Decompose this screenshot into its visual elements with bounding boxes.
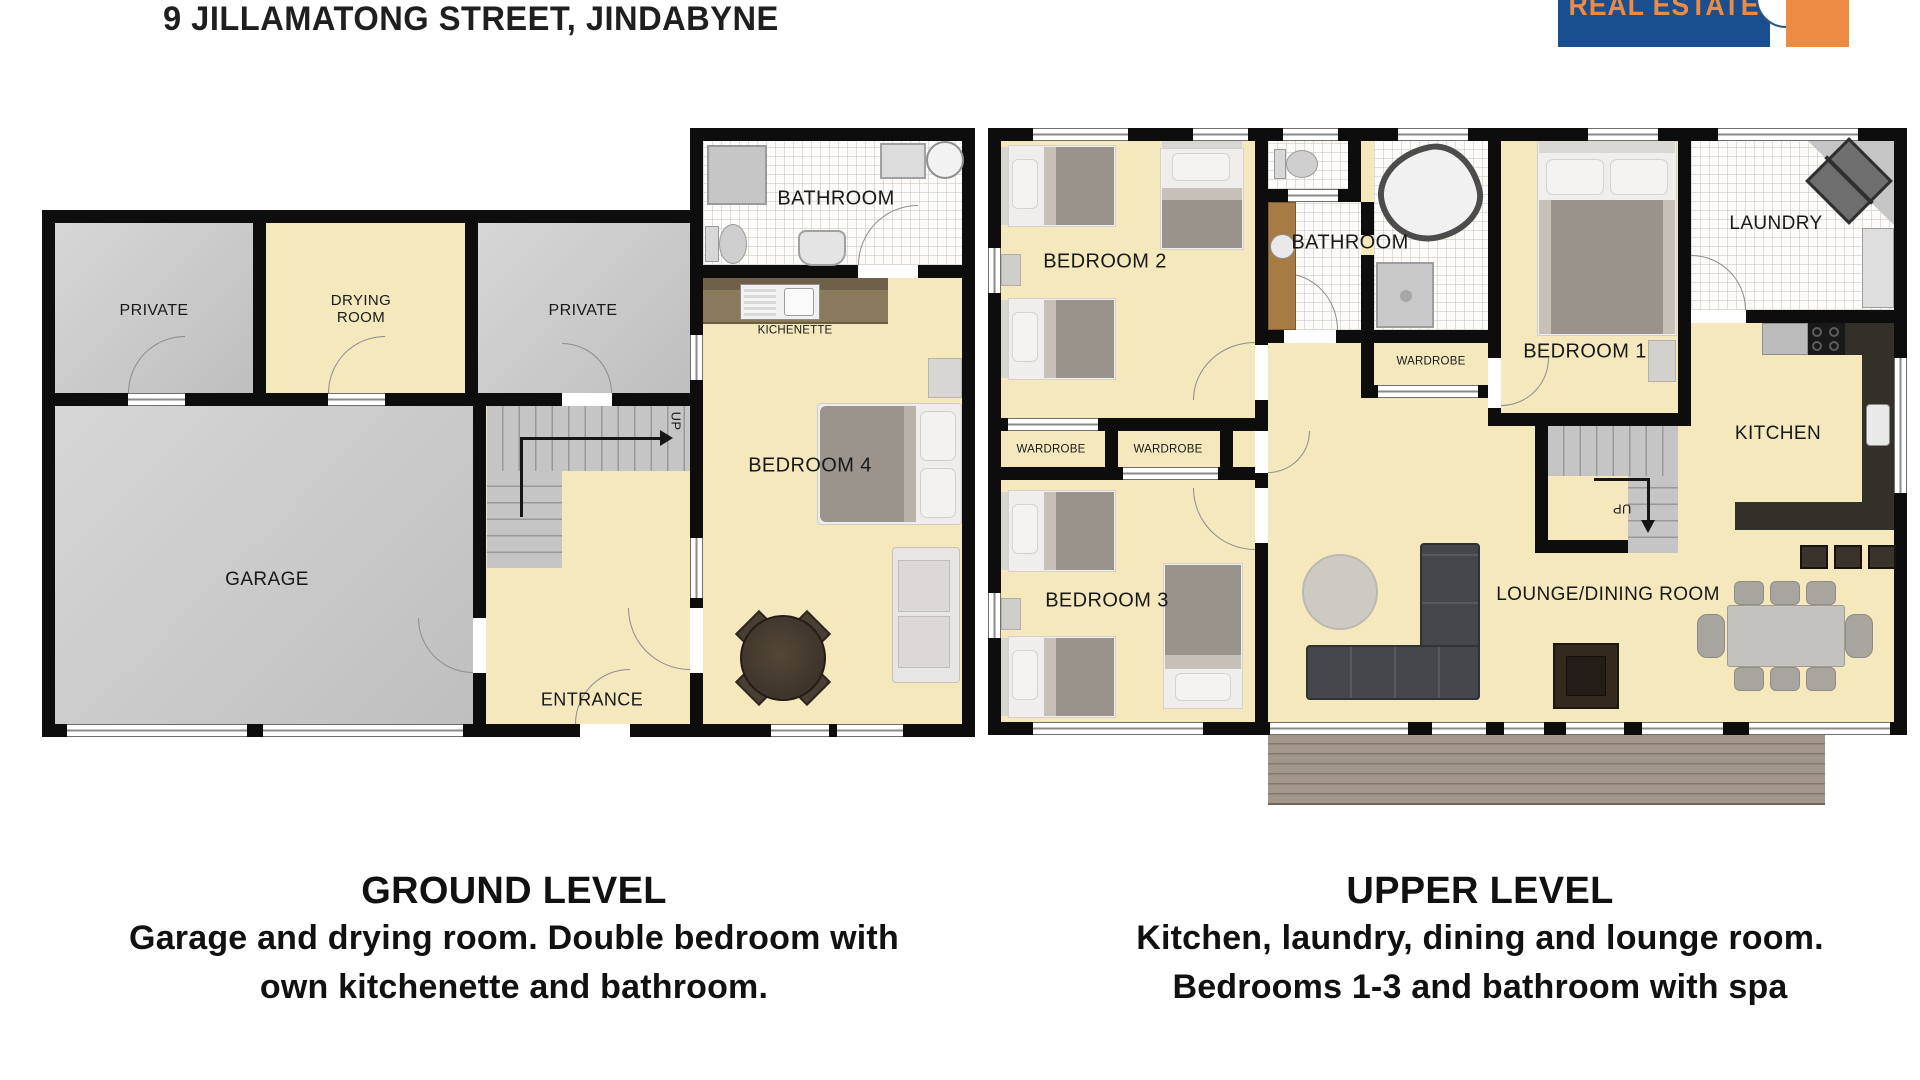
stairs-arrow-line	[1594, 478, 1650, 481]
dining-chair	[1770, 581, 1800, 605]
deck	[1268, 723, 1825, 805]
stairs-arrow-head	[1641, 520, 1655, 533]
wall	[473, 673, 486, 724]
window	[988, 593, 1001, 638]
window	[1718, 128, 1858, 141]
bed-pillow	[1610, 159, 1668, 195]
wall	[42, 210, 703, 223]
window	[1270, 722, 1890, 735]
window	[1033, 128, 1128, 141]
room-label-bedroom4: BEDROOM 4	[748, 455, 872, 478]
bed-pillow	[1012, 650, 1038, 700]
logo-orange-panel	[1786, 0, 1849, 47]
window	[1033, 722, 1203, 735]
bed-pillow	[920, 468, 956, 518]
bed-sheet-fold	[1165, 655, 1241, 669]
bed-sheet-fold	[1044, 147, 1056, 225]
logo-blue-panel: REAL ESTATE	[1558, 0, 1770, 47]
bed-pillow	[1546, 159, 1604, 195]
garage-door	[263, 724, 463, 737]
bed-pillow	[1012, 159, 1038, 209]
round-basin	[926, 141, 964, 179]
dining-chair	[1697, 614, 1725, 658]
room-label-private1: PRIVATE	[120, 302, 189, 320]
stairs-up-label: UP	[1613, 501, 1632, 516]
toilet	[1274, 149, 1286, 179]
bedside-shelf	[928, 358, 962, 398]
wall	[1535, 540, 1628, 553]
burner	[1829, 341, 1839, 351]
room-label-garage: GARAGE	[225, 569, 309, 591]
wall	[253, 210, 266, 406]
dining-chair	[1734, 581, 1764, 605]
room-label-kichenette: KICHENETTE	[758, 324, 833, 337]
kitchen-counter-dark	[1845, 323, 1894, 355]
window	[1193, 128, 1248, 141]
bar-stool	[1868, 545, 1896, 569]
door-opening	[1284, 330, 1336, 343]
wall	[1488, 141, 1501, 358]
wall	[1488, 413, 1678, 426]
bed-headboard	[1001, 147, 1008, 225]
wall	[1361, 202, 1374, 235]
wall	[465, 210, 478, 406]
bar-stool	[1834, 545, 1862, 569]
upper-caption-line1: Kitchen, laundry, dining and lounge room…	[1080, 914, 1880, 963]
room-label-private2: PRIVATE	[549, 302, 618, 320]
room-label-bedroom1: BEDROOM 1	[1523, 341, 1647, 364]
window	[1894, 358, 1907, 493]
wall	[690, 128, 975, 141]
upper-caption-line2: Bedrooms 1-3 and bathroom with spa	[1080, 963, 1880, 1012]
dining-chair	[1734, 667, 1764, 691]
bed-pillow	[1172, 153, 1230, 181]
bed-headboard	[1001, 300, 1008, 378]
wall	[1361, 255, 1374, 330]
bedside-table	[1001, 254, 1021, 286]
door-opening	[473, 618, 486, 673]
logo-real-estate-text: REAL ESTATE	[1566, 0, 1761, 23]
toilet	[705, 226, 719, 262]
bed-blanket	[1539, 200, 1675, 334]
room-label-drying: DRYING ROOM	[331, 292, 391, 327]
wall	[1535, 426, 1548, 553]
wall	[1544, 722, 1566, 735]
wall	[1255, 128, 1268, 345]
stairs-arrow-line2	[1647, 478, 1650, 520]
wall	[1255, 543, 1268, 722]
garage-floor	[55, 406, 473, 724]
wall	[918, 265, 962, 278]
sofa-sectional-horizontal	[1306, 645, 1480, 700]
door-opening	[1255, 431, 1268, 473]
door-opening	[690, 608, 703, 673]
kitchen-counter	[1762, 323, 1808, 355]
bed-sheet-fold	[1162, 188, 1242, 200]
burner	[1812, 327, 1822, 337]
bedside-table	[1001, 598, 1021, 630]
window	[1283, 128, 1338, 141]
wardrobe-doors	[1378, 385, 1478, 398]
door-opening	[858, 265, 918, 278]
stairs-flight2	[1628, 476, 1678, 553]
dining-chair	[1845, 614, 1873, 658]
stairs-arrow-head	[660, 430, 673, 446]
shower-drain	[1400, 290, 1412, 302]
dining-table	[1727, 605, 1845, 667]
wardrobe-doors	[1123, 467, 1218, 480]
room-label-bathroom: BATHROOM	[1291, 232, 1408, 255]
doorway	[328, 393, 385, 406]
ground-caption-line1: Garage and drying room. Double bedroom w…	[114, 914, 914, 963]
upper-caption: UPPER LEVEL Kitchen, laundry, dining and…	[1080, 868, 1880, 1012]
upper-floorplan: BEDROOM 2 BATHROOM LAUNDRY BEDROOM 1 WAR…	[988, 128, 1907, 808]
bar-stool	[1800, 545, 1828, 569]
vanity	[1268, 202, 1296, 330]
kitchenette-basin	[784, 288, 814, 316]
window	[1588, 128, 1658, 141]
kitchen-sink	[1866, 404, 1890, 446]
bed-blanket	[1165, 565, 1241, 655]
bed-headboard	[1162, 141, 1242, 148]
room-label-bedroom3: BEDROOM 3	[1045, 590, 1169, 613]
kitchenette-drainer	[744, 288, 776, 316]
ottoman-top	[1566, 656, 1606, 696]
window	[837, 724, 903, 737]
ground-floorplan: PRIVATE DRYING ROOM PRIVATE BATHROOM KIC…	[42, 128, 975, 737]
door-opening	[580, 724, 630, 737]
door-opening	[1255, 488, 1268, 543]
wall	[1220, 418, 1233, 480]
round-table	[740, 615, 826, 701]
wall	[962, 128, 975, 737]
door-opening	[1255, 345, 1268, 400]
wall	[690, 141, 703, 335]
burner	[1812, 341, 1822, 351]
bed-headboard	[1001, 492, 1008, 570]
stairs-arrow-line2	[520, 437, 523, 517]
room-label-bedroom2: BEDROOM 2	[1043, 251, 1167, 274]
doorway	[128, 393, 185, 406]
wall	[1408, 722, 1432, 735]
room-label-bathroom: BATHROOM	[777, 188, 894, 211]
wall	[690, 598, 703, 608]
sofa-cushion	[898, 616, 950, 668]
garage-door	[67, 724, 247, 737]
wall	[1361, 343, 1374, 385]
property-address: 9 JILLAMATONG STREET, JINDABYNE	[163, 0, 779, 39]
bed-headboard	[1001, 638, 1008, 716]
shower	[707, 145, 767, 205]
kitchen-island	[1735, 502, 1894, 530]
dining-chair	[1806, 581, 1836, 605]
wall	[1723, 722, 1749, 735]
wall	[42, 210, 55, 737]
agency-logo: REAL ESTATE	[1556, 0, 1856, 60]
floorplan-page: 9 JILLAMATONG STREET, JINDABYNE REAL EST…	[0, 0, 1920, 1080]
window	[690, 538, 703, 598]
bed-sheet-fold	[1044, 638, 1056, 716]
dining-chair	[1806, 667, 1836, 691]
wall	[690, 673, 703, 724]
basin	[798, 230, 846, 266]
wall	[988, 128, 1001, 735]
upper-caption-title: UPPER LEVEL	[1080, 868, 1880, 914]
bed-sheet-fold	[1044, 300, 1056, 378]
window	[771, 724, 829, 737]
bed-sheet-fold	[1044, 492, 1056, 570]
stairs-flight	[1548, 426, 1678, 476]
door-opening	[562, 393, 612, 406]
ground-caption-line2: own kitchenette and bathroom.	[114, 963, 914, 1012]
room-label-laundry: LAUNDRY	[1729, 213, 1822, 235]
bed-sheet-fold	[1539, 200, 1551, 334]
wall	[1255, 400, 1268, 431]
window	[690, 335, 703, 380]
bed-sheet-fold	[1663, 200, 1675, 334]
window	[988, 248, 1001, 293]
wall	[690, 265, 858, 278]
wall	[1678, 128, 1691, 426]
bed-pillow	[1012, 312, 1038, 362]
rug	[1302, 554, 1378, 630]
wall	[1255, 473, 1268, 488]
wardrobe-doors	[1008, 418, 1098, 431]
door-opening	[1488, 358, 1501, 408]
bed-sheet-fold	[904, 406, 916, 522]
wall	[1348, 141, 1361, 189]
bedside-table	[1648, 340, 1676, 382]
room-label-wardrobe-c: WARDROBE	[1397, 355, 1466, 368]
doorway	[1288, 189, 1338, 202]
stairs-arrow-line	[520, 437, 662, 440]
toilet-bowl	[719, 224, 747, 264]
wall	[473, 406, 486, 618]
bed-pillow	[920, 411, 956, 461]
ground-caption-title: GROUND LEVEL	[114, 868, 914, 914]
wall	[1105, 418, 1118, 480]
room-label-wardrobe-b: WARDROBE	[1134, 443, 1203, 456]
room-label-wardrobe-a: WARDROBE	[1017, 443, 1086, 456]
door-opening	[1691, 310, 1746, 323]
wall	[1624, 722, 1642, 735]
window	[1398, 128, 1468, 141]
wall	[1486, 722, 1504, 735]
bed-headboard	[1539, 141, 1675, 153]
stairs-flight-lower	[487, 471, 562, 568]
stairs-up-label: UP	[668, 412, 683, 431]
toilet-bowl	[1286, 150, 1318, 178]
bed-pillow	[1175, 673, 1231, 701]
sofa-cushion	[898, 560, 950, 612]
ground-caption: GROUND LEVEL Garage and drying room. Dou…	[114, 868, 914, 1012]
room-label-lounge: LOUNGE/DINING ROOM	[1496, 584, 1720, 606]
burner	[1829, 327, 1839, 337]
laundry-cabinet	[1862, 228, 1894, 308]
dining-chair	[1770, 667, 1800, 691]
bed-pillow	[1012, 504, 1038, 554]
room-label-kitchen: KITCHEN	[1735, 423, 1821, 445]
washer	[880, 143, 926, 179]
room-label-entrance: ENTRANCE	[541, 690, 643, 711]
